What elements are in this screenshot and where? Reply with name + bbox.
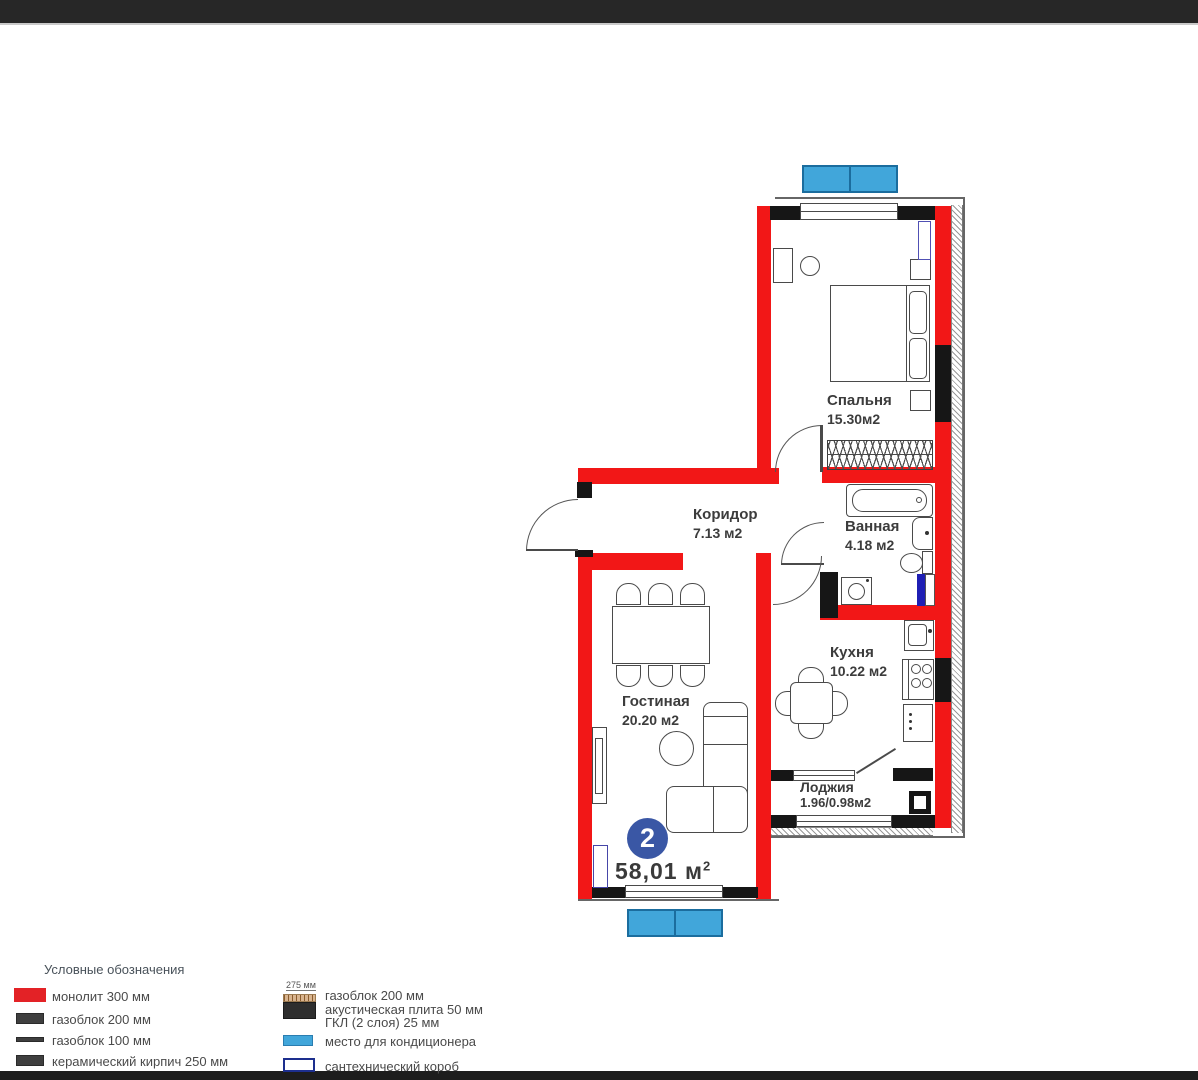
washing-machine-drum [848, 583, 865, 600]
wall-segment [757, 206, 771, 473]
wall-black-segment [723, 887, 758, 898]
floor-plan-page: Спальня 15.30м2 Коридор 7.13 м2 Ванная 4… [0, 0, 1198, 1080]
window [796, 815, 892, 827]
legend-label-gazoblok100: газоблок 100 мм [52, 1033, 151, 1048]
ac-cell [804, 167, 851, 191]
chair [800, 256, 820, 276]
plumbing-shaft [917, 574, 925, 606]
cabinet-dot [909, 713, 912, 716]
room-label-corridor: Коридор 7.13 м2 [693, 506, 758, 542]
floor-plan: Спальня 15.30м2 Коридор 7.13 м2 Ванная 4… [0, 0, 1198, 1080]
loggia-door-leaf [856, 748, 896, 774]
chair [798, 667, 824, 683]
kitchen-table [790, 682, 833, 724]
legend-layered-line2: акустическая плита 50 мм [325, 1003, 483, 1017]
room-label-bathroom: Ванная 4.18 м2 [845, 518, 899, 554]
outer-contour-line [771, 836, 965, 838]
wall-black-segment [893, 768, 933, 781]
bathroom-sink [912, 517, 933, 550]
chair [680, 665, 705, 687]
window [625, 885, 723, 898]
door-frame [575, 550, 593, 557]
wall-black-segment [935, 658, 951, 702]
room-label-kitchen: Кухня 10.22 м2 [830, 644, 887, 680]
room-label-loggia: Лоджия 1.96/0.98м2 [800, 779, 871, 811]
total-area-sup: 2 [703, 858, 711, 873]
wall-segment [578, 468, 779, 484]
kitchen-faucet-dot [928, 629, 932, 633]
chair [680, 583, 705, 605]
total-area-value: 58,01 [615, 858, 678, 884]
desk [773, 248, 793, 283]
legend-swatch-gazoblok100 [16, 1037, 44, 1042]
pillow [909, 291, 927, 334]
legend-swatch-ac [283, 1035, 313, 1046]
wardrobe-rail [827, 454, 933, 455]
entrance-door-arc [526, 499, 578, 551]
outer-contour-line [775, 197, 965, 199]
ac-unit-top [802, 165, 898, 193]
exterior-hatch-strip [951, 205, 963, 833]
dining-table [612, 606, 710, 664]
legend-layered-line1: газоблок 200 мм [325, 989, 483, 1003]
burner [911, 664, 921, 674]
wall-segment [578, 553, 592, 899]
burner [911, 678, 921, 688]
shaft-box [909, 791, 931, 814]
wall-black-segment [820, 572, 838, 618]
wall-segment [935, 206, 951, 828]
wall-black-segment [771, 770, 793, 781]
sofa-cushion-line [704, 744, 747, 745]
total-area-label: 58,01 м2 [615, 858, 711, 885]
legend-title: Условные обозначения [44, 962, 184, 977]
legend-label-kirpich: керамический кирпич 250 мм [52, 1054, 228, 1069]
door-frame [577, 482, 592, 498]
window [800, 203, 898, 220]
chair [798, 723, 824, 739]
legend-swatch-layered-top [283, 994, 316, 1002]
plumbing-shaft-box [925, 574, 935, 606]
wall-black-segment [771, 815, 796, 828]
wall-black-segment [898, 206, 935, 220]
bathtub-drain [916, 497, 922, 503]
toilet-bowl [900, 553, 923, 573]
legend-swatch-kirpich [16, 1055, 44, 1066]
sofa-section-horizontal [666, 786, 748, 833]
washing-machine-knob [866, 579, 869, 582]
ac-cell [851, 167, 896, 191]
pillow [909, 338, 927, 379]
sofa-cushion-line [713, 787, 714, 832]
apartment-number-badge: 2 [627, 818, 668, 859]
riser-box [918, 221, 931, 260]
legend-swatch-monolith [14, 988, 46, 1002]
total-area-unit: м [685, 858, 703, 884]
wardrobe [827, 440, 933, 470]
chair [775, 691, 791, 716]
cabinet-dot [909, 720, 912, 723]
burner [922, 678, 932, 688]
wall-segment [585, 553, 683, 570]
legend-swatch-gazoblok200 [16, 1013, 44, 1024]
coffee-table [659, 731, 694, 766]
sink-faucet-dot [925, 531, 929, 535]
ac-cell [629, 911, 676, 935]
chair [648, 583, 673, 605]
stove-panel [903, 660, 909, 699]
entrance-door-leaf [526, 549, 578, 551]
cabinet-dot [909, 727, 912, 730]
shaft-box-inner [914, 796, 926, 809]
legend-swatch-plumbing [283, 1058, 315, 1072]
kitchen-door-arc [773, 556, 822, 605]
nightstand [910, 390, 931, 411]
burner [922, 664, 932, 674]
kitchen-cabinet [903, 704, 933, 742]
legend-swatch-layered-bottom [283, 1002, 316, 1019]
wall-black-segment [770, 206, 800, 220]
chair [648, 665, 673, 687]
bedroom-door-arc [775, 425, 822, 472]
chair [616, 665, 641, 687]
legend-label-ac: место для кондиционера [325, 1034, 476, 1049]
bed-headboard-line [906, 286, 907, 381]
room-label-living: Гостиная 20.20 м2 [622, 693, 690, 729]
wall-segment [756, 553, 771, 899]
wall-black-segment [935, 345, 951, 422]
legend-label-monolith: монолит 300 мм [52, 989, 150, 1004]
radiator [593, 845, 608, 888]
toilet-tank [922, 551, 933, 574]
nightstand [910, 259, 931, 280]
wall-black-segment [592, 887, 625, 898]
kitchen-sink [908, 624, 927, 646]
legend-layered-line3: ГКЛ (2 слоя) 25 мм [325, 1016, 483, 1030]
wall-black-segment [892, 815, 935, 828]
chair [616, 583, 641, 605]
legend-label-gazoblok200: газоблок 200 мм [52, 1012, 151, 1027]
ac-cell [676, 911, 721, 935]
legend-label-layered: газоблок 200 мм акустическая плита 50 мм… [325, 989, 483, 1030]
legend-dim-label: 275 мм [286, 980, 316, 991]
sofa-cushion-line [704, 716, 747, 717]
exterior-hatch-strip [771, 827, 933, 836]
bedroom-door-leaf [820, 425, 823, 472]
legend-label-plumbing: сантехнический короб [325, 1059, 459, 1074]
outer-contour-line [963, 197, 965, 838]
outer-contour-line [578, 899, 779, 901]
tv-stand-inner [595, 738, 603, 794]
chair [832, 691, 848, 716]
ac-unit-bottom [627, 909, 723, 937]
legend: Условные обозначения монолит 300 мм газо… [0, 955, 560, 1075]
room-label-bedroom: Спальня 15.30м2 [827, 392, 892, 428]
